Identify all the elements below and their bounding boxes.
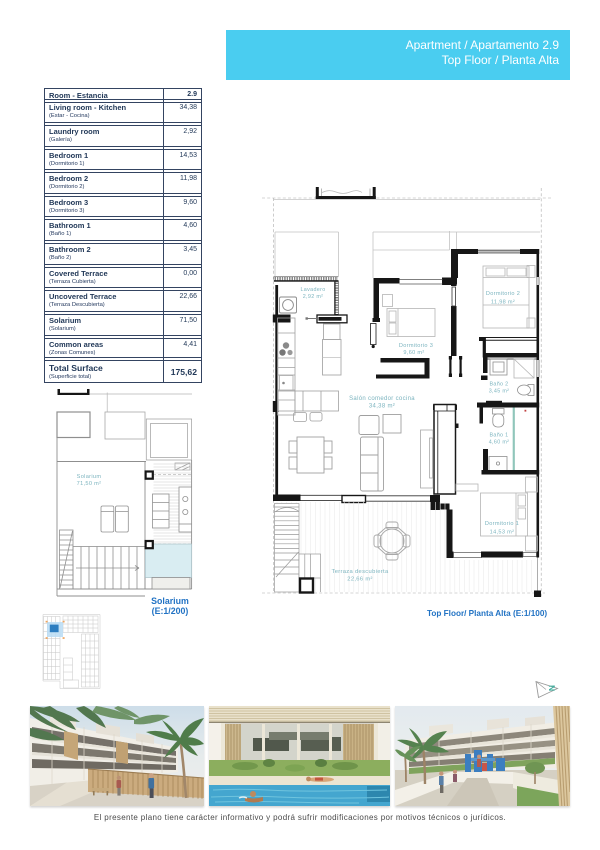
svg-text:34,38 m²: 34,38 m² [369, 404, 395, 410]
svg-text:Solarium: Solarium [77, 474, 102, 480]
svg-text:9,60 m²: 9,60 m² [403, 350, 424, 356]
svg-text:71,50 m²: 71,50 m² [77, 481, 102, 487]
svg-text:3,45 m²: 3,45 m² [489, 389, 510, 395]
svg-text:Salón comedor cocina: Salón comedor cocina [349, 396, 415, 402]
svg-text:(E:1/200): (E:1/200) [152, 606, 189, 616]
svg-text:Baño 2: Baño 2 [489, 382, 508, 388]
svg-text:Baño 1: Baño 1 [489, 433, 508, 439]
svg-text:Dormitorio 2: Dormitorio 2 [486, 291, 520, 297]
svg-text:Lavadero: Lavadero [300, 287, 325, 293]
svg-text:22,66 m²: 22,66 m² [347, 577, 372, 583]
svg-text:11,98 m²: 11,98 m² [491, 299, 515, 305]
svg-text:4,60 m²: 4,60 m² [489, 440, 510, 446]
svg-text:Terraza descubierta: Terraza descubierta [332, 569, 389, 575]
svg-text:2,92 m²: 2,92 m² [303, 294, 324, 300]
svg-text:Dormitorio 3: Dormitorio 3 [399, 343, 433, 349]
svg-text:Dormitorio 1: Dormitorio 1 [485, 521, 519, 527]
svg-text:Solarium: Solarium [151, 596, 189, 606]
svg-text:14,53 m²: 14,53 m² [490, 529, 515, 535]
svg-text:Top Floor/ Planta Alta (E:1/10: Top Floor/ Planta Alta (E:1/100) [427, 609, 547, 618]
svg-text:N: N [547, 685, 557, 691]
